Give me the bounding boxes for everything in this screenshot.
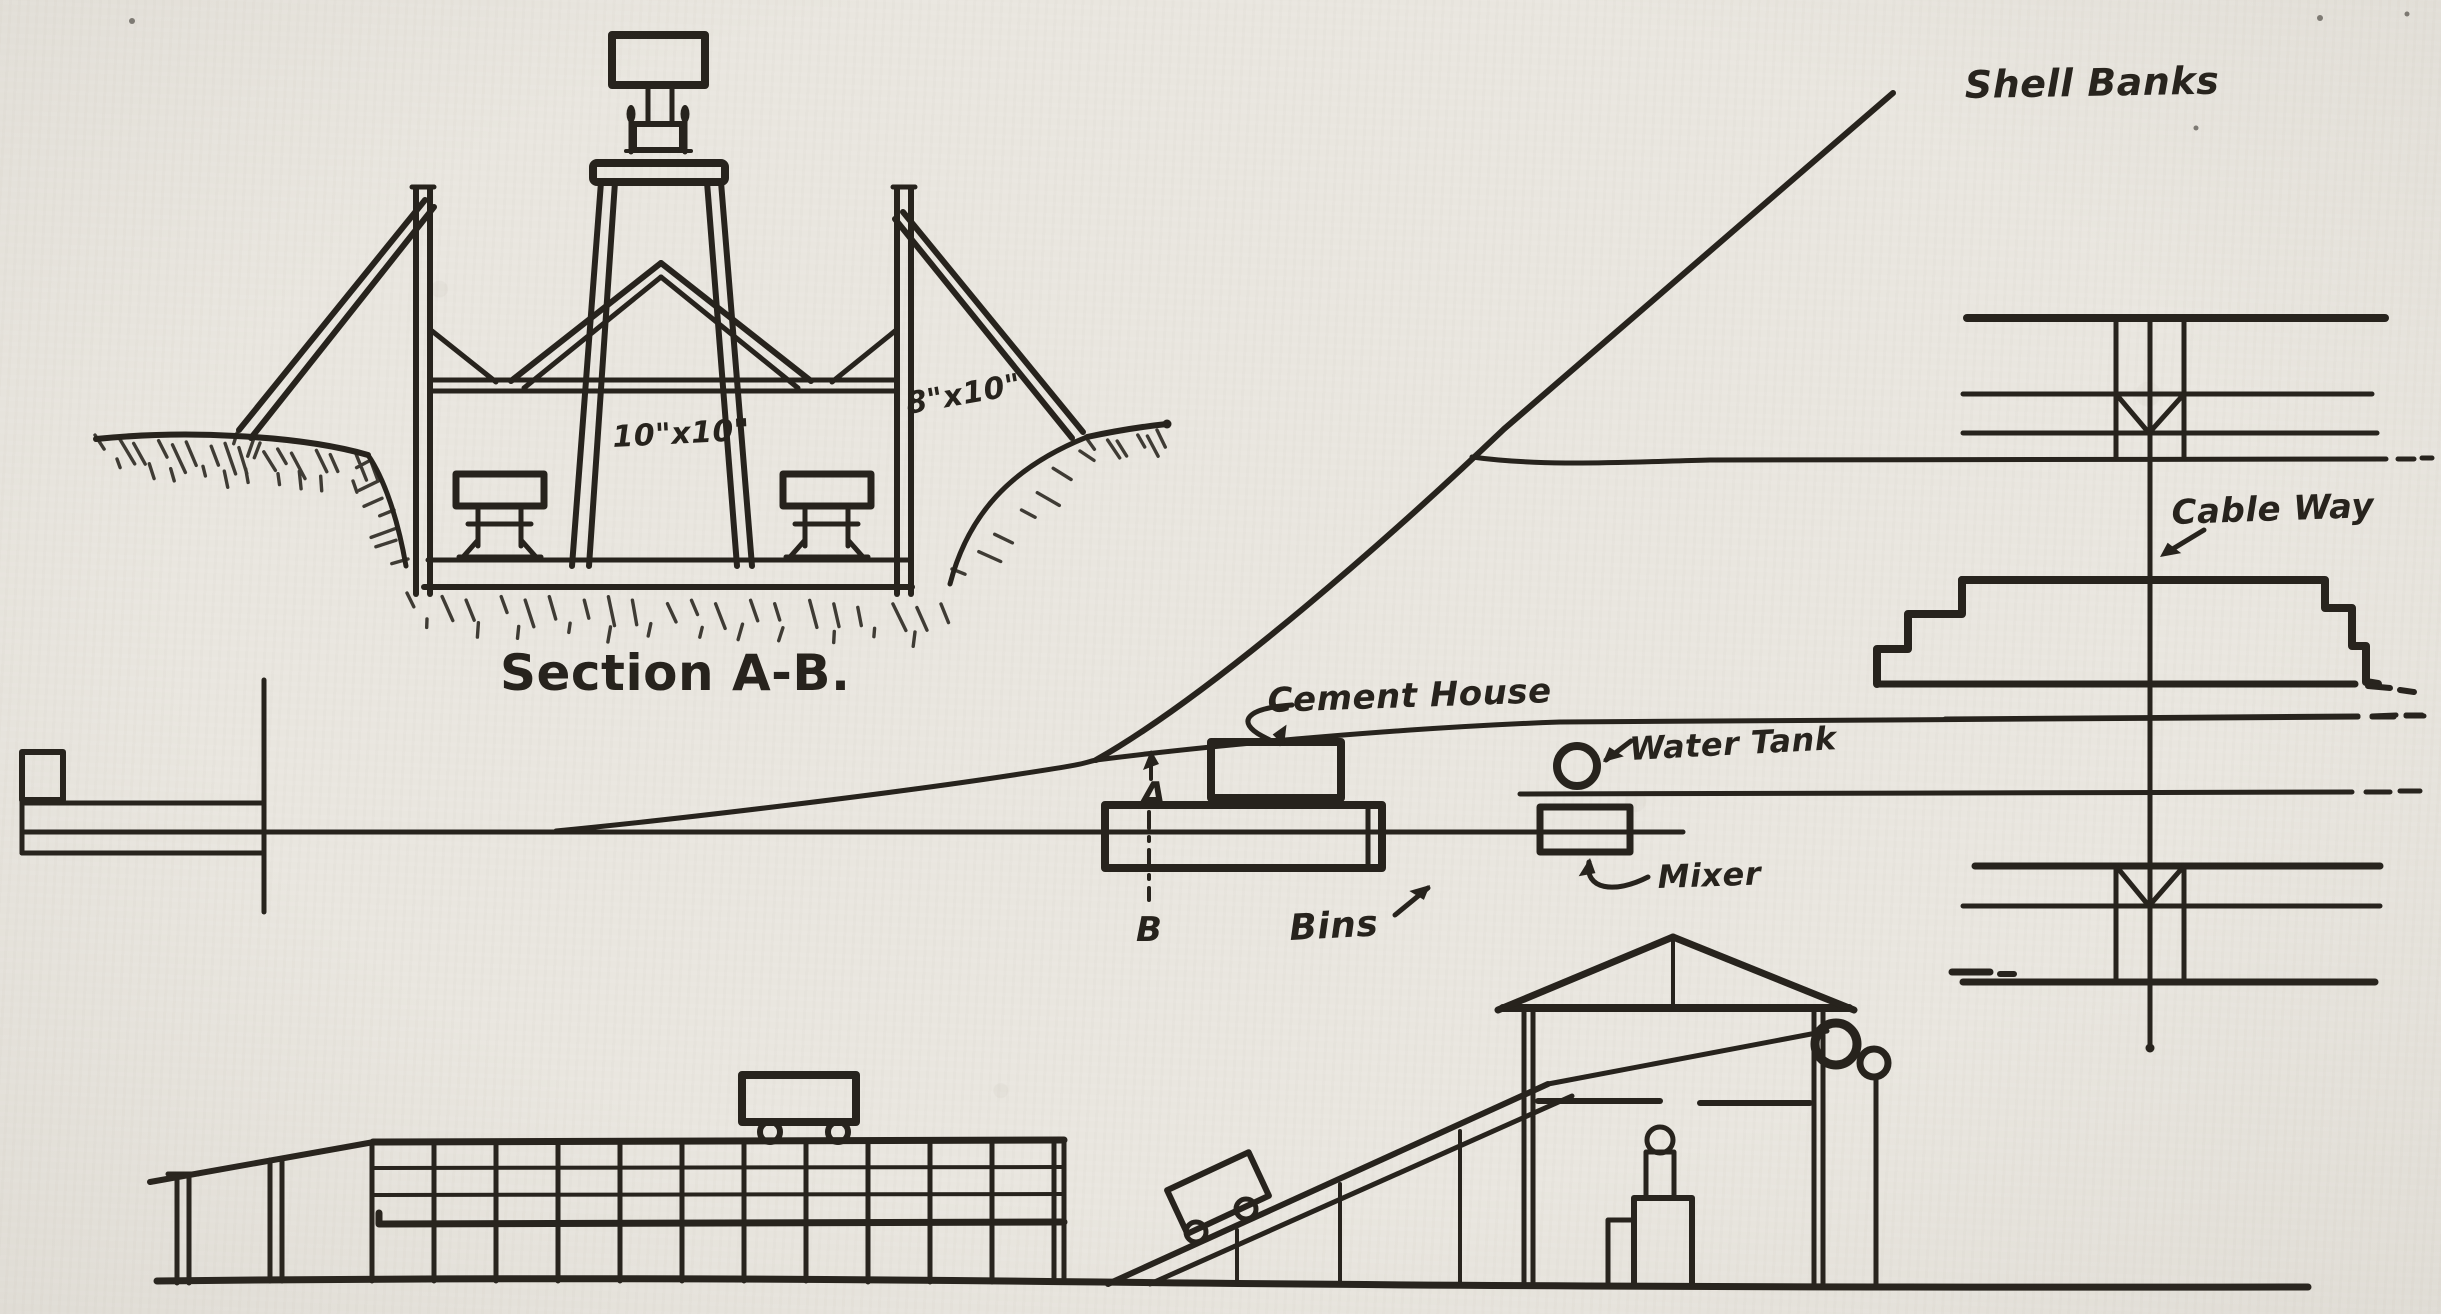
label-point-a: A (1137, 775, 1167, 815)
scan-speck (129, 18, 135, 24)
roof-rafter-left (1498, 937, 1673, 1010)
label-mixer: Mixer (1657, 854, 1763, 896)
sheave-wheel-icon (1860, 1049, 1888, 1077)
label-point-b: B (1136, 910, 1162, 950)
mixer-track-line (1520, 792, 2352, 794)
ground-line (157, 1279, 2308, 1287)
tail-tower-plan (1963, 866, 2380, 982)
construction-plant-diagram: 10"x10" 8"x10" Section A-B. (0, 0, 2441, 1314)
plant-elevation (150, 937, 2308, 1287)
dock-house (22, 752, 63, 800)
stepped-structure-plan (1877, 580, 2414, 692)
hoist-sheaves (1815, 1023, 1888, 1286)
bank-top-line-upper (1472, 457, 2386, 463)
cableway-head-gear (593, 35, 725, 182)
carriage-wheel-icon (828, 1122, 848, 1142)
scan-speck (2317, 15, 2323, 21)
tower-cap (593, 163, 725, 182)
incline-cart (1167, 1152, 1269, 1242)
knee-brace-left (432, 331, 496, 382)
dock-plan (22, 680, 264, 912)
cement-house-plan (1211, 742, 1341, 798)
scan-speck (2405, 12, 2410, 17)
track-pedestal-right (783, 474, 871, 557)
section-title: Section A-B. (500, 644, 851, 702)
roof-rafter-right (1673, 937, 1854, 1010)
storage-bins-trestle (150, 1140, 1064, 1282)
dimension-label-8x10: 8"x10" (903, 367, 1024, 422)
ground-hatching (95, 430, 1165, 646)
loading-mast (168, 1174, 198, 1283)
carriage-wheel-icon (760, 1122, 780, 1142)
yard-plan: A B Cement House Bins Water Tank Mixer (22, 93, 2432, 950)
head-block (612, 35, 705, 85)
label-cable-way: Cable Way (2171, 486, 2376, 533)
cableway-plan: Shell Banks Cable Way (1877, 59, 2422, 1053)
engine-dome-icon (1647, 1127, 1673, 1153)
sheave-pin-right (681, 105, 690, 123)
ground-line-right (1087, 424, 1167, 437)
leader-mixer (1588, 862, 1648, 887)
pit-wall-right (950, 437, 1087, 584)
incline-track (1108, 1031, 1827, 1284)
track-pedestal-left (456, 474, 544, 557)
sheave-pin-left (627, 105, 636, 123)
knee-brace-right (832, 331, 895, 382)
bank-toe-line (556, 760, 1096, 831)
bank-line-right (1945, 716, 2358, 719)
label-cement-house: Cement House (1267, 671, 1552, 721)
water-tank-plan (1557, 746, 1597, 786)
section-cut-line: A B (1136, 750, 1167, 950)
shell-bank-slope-line (1096, 93, 1893, 760)
mixer-house-elevation (1498, 937, 1854, 1286)
guy-brace-left (239, 200, 425, 430)
tower-legs (572, 182, 752, 566)
scan-speck (2194, 126, 2199, 131)
label-water-tank: Water Tank (1628, 719, 1838, 768)
scanned-drawing-page: { "drawing": { "labels": { "section_titl… (0, 0, 2441, 1314)
label-bins: Bins (1288, 903, 1379, 949)
cableway-carriage (742, 1075, 856, 1142)
label-shell-banks: Shell Banks (1964, 59, 2219, 107)
hoisting-engine (1608, 1127, 1692, 1286)
dimension-label-10x10: 10"x10" (612, 413, 751, 455)
head-tower-plan (1963, 318, 2385, 458)
a-frame-truss (431, 263, 897, 391)
